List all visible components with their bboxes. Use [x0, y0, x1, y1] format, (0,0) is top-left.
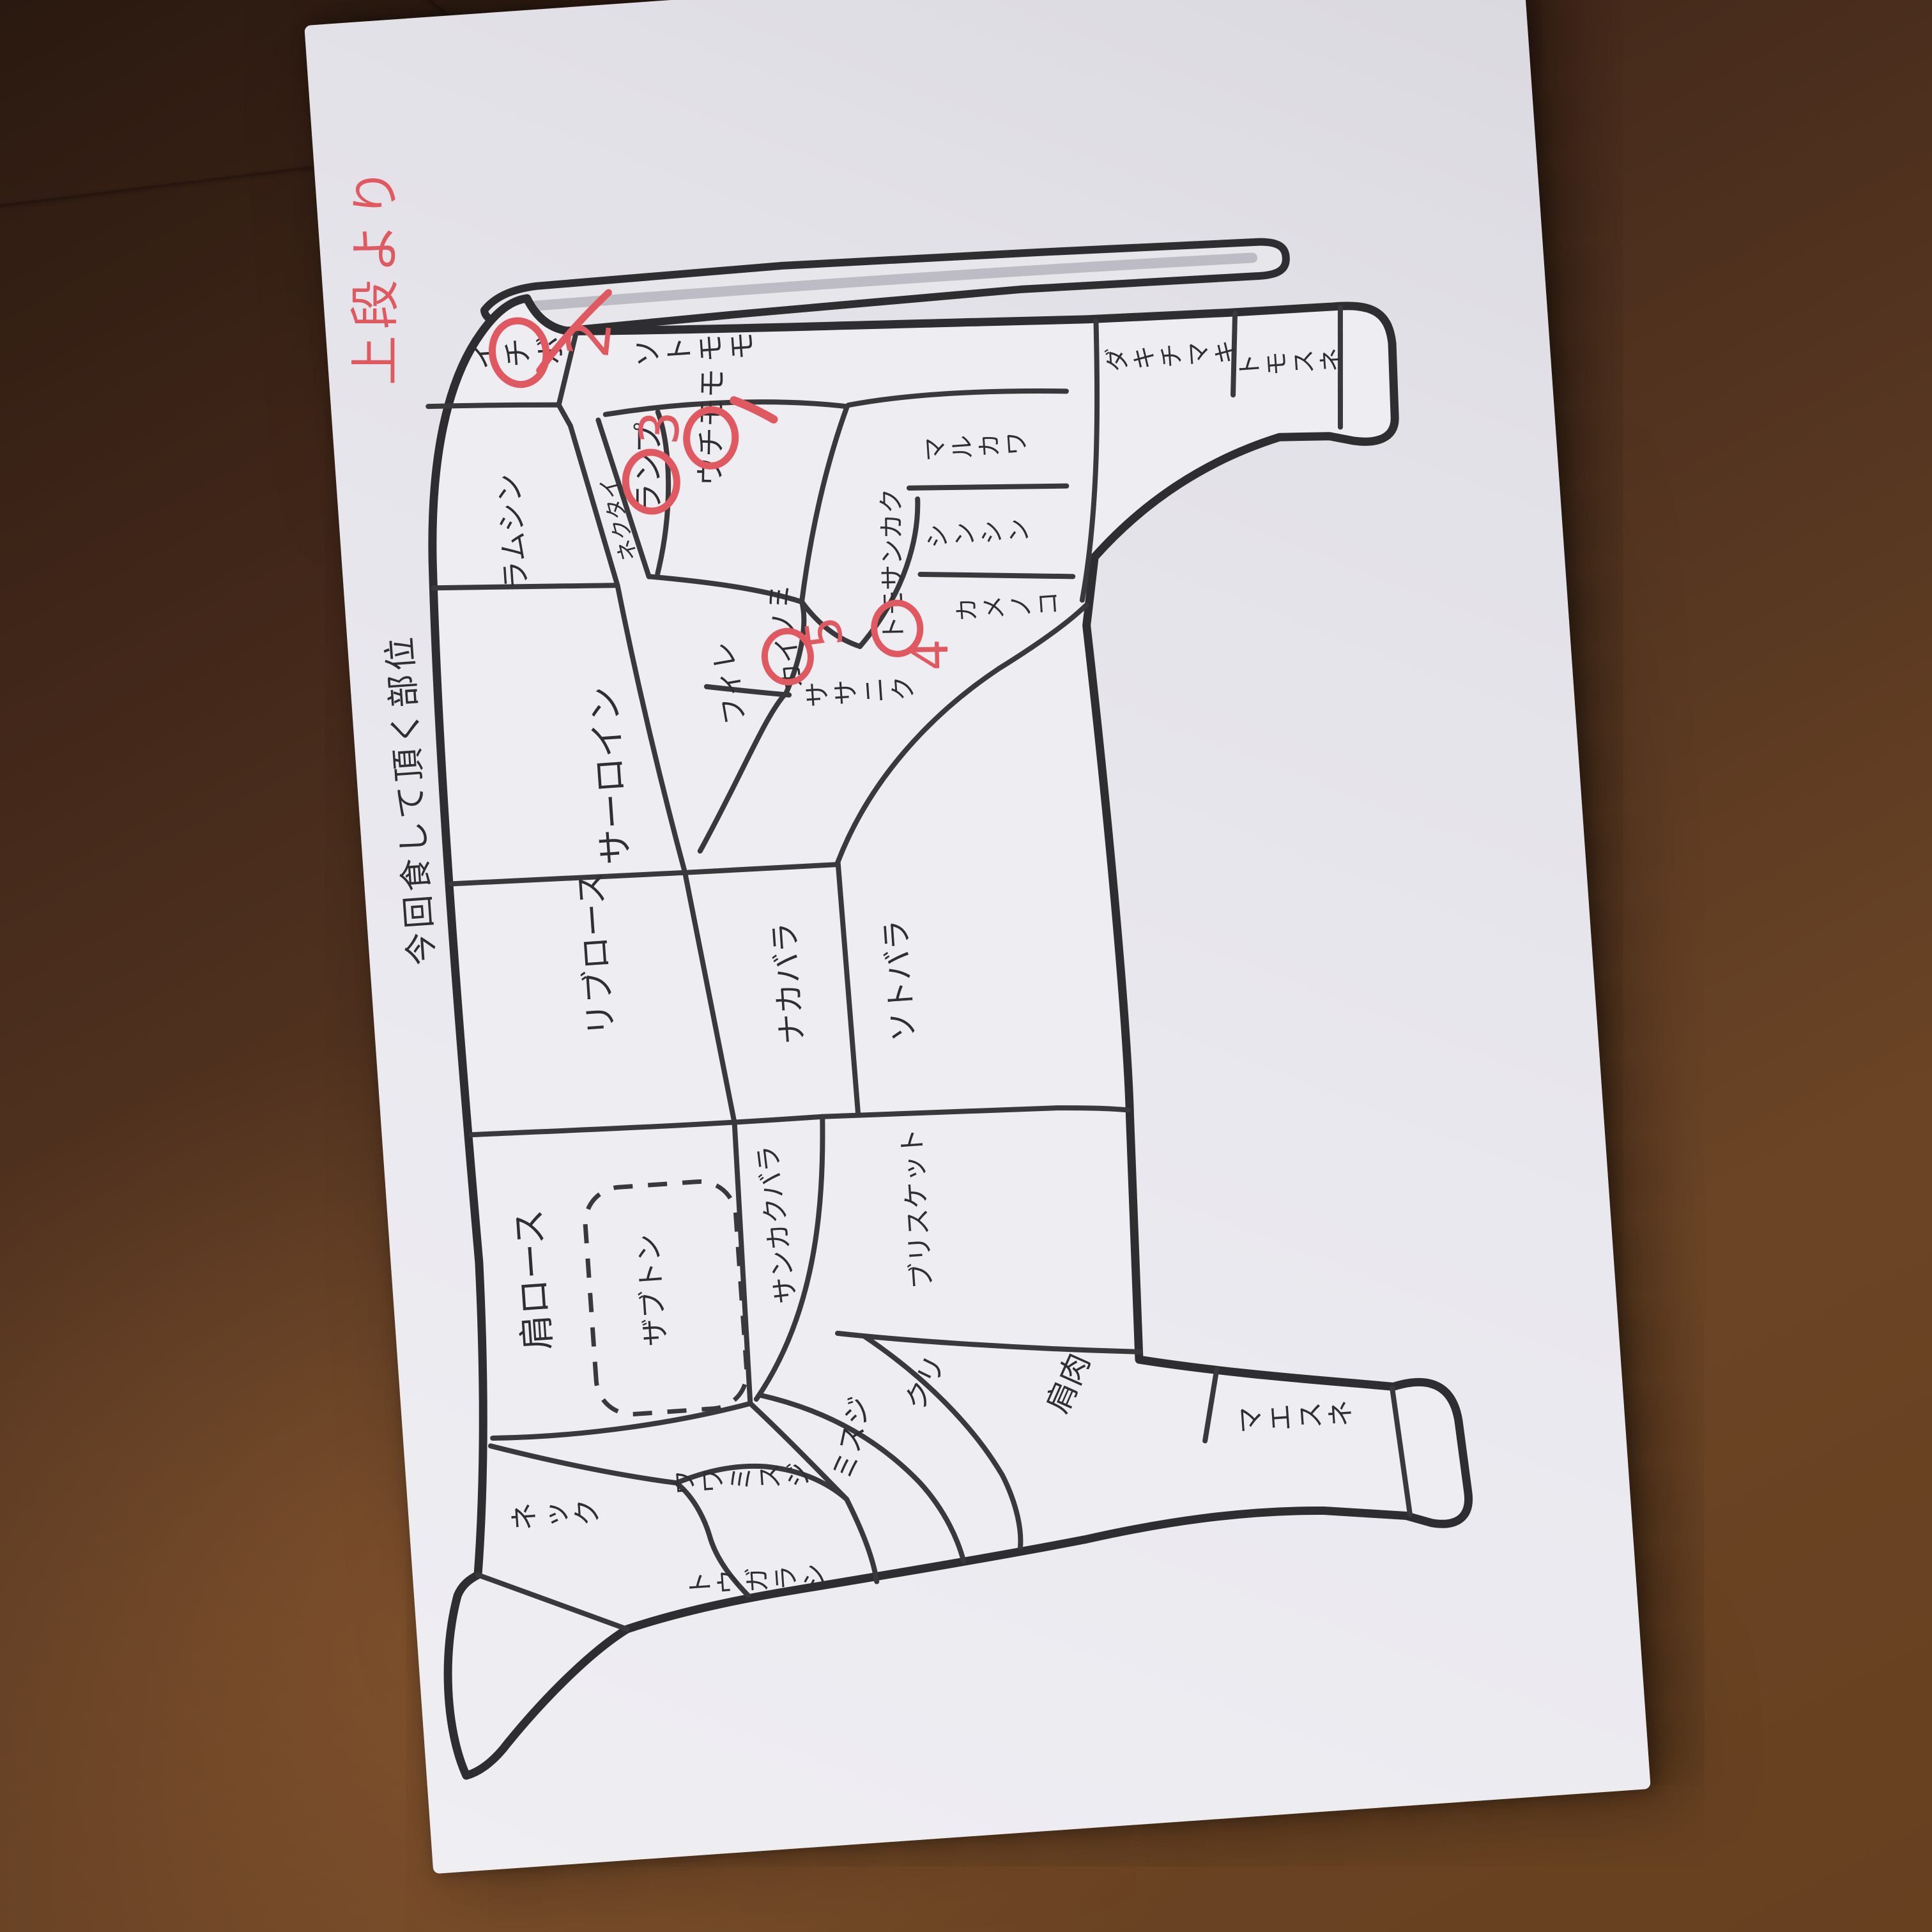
card-title: 今回食して頂く部位: [381, 632, 442, 966]
beef-cut-chart-card: 今回食して頂く部位 上段より: [304, 0, 1651, 1874]
number-mark-tomosankaku: 4: [902, 638, 960, 671]
cut-label-tomosankaku: トモサンカク: [877, 488, 908, 642]
handwritten-note: 上段より: [347, 162, 404, 385]
photo-of-beef-cut-chart: { "scene": { "surface": "brown-leather-t…: [0, 0, 1932, 1932]
beef-cut-diagram: 今回食して頂く部位 上段より: [304, 0, 1651, 1874]
number-mark-rump: 3: [628, 410, 692, 446]
